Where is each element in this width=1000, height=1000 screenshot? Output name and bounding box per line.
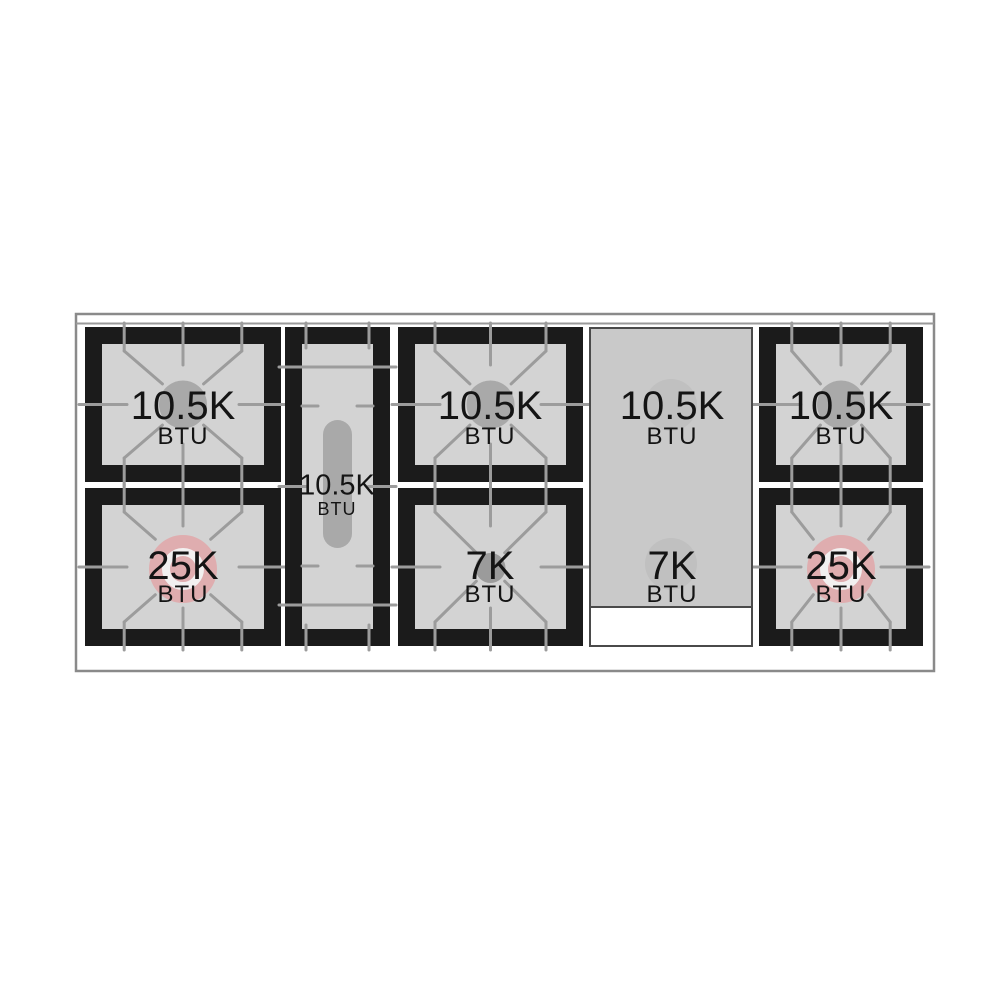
burner-unit-label: BTU — [816, 583, 867, 607]
griddle-drip-tray — [590, 607, 752, 646]
burner-power-label: 10.5K — [299, 472, 375, 501]
burner-unit-label: BTU — [158, 583, 209, 607]
burner-unit-label: BTU — [158, 425, 209, 449]
burner-unit-label: BTU — [318, 500, 357, 518]
burner-power-label: 10.5K — [438, 386, 543, 426]
range-cooktop-diagram: 10.5K BTU 25K BTU 10.5K BTU 10.5K BTU 7K… — [0, 0, 1000, 1000]
burner-power-label: 10.5K — [131, 386, 236, 426]
cooktop-graphics — [0, 0, 1000, 1000]
burner-power-label: 25K — [805, 546, 876, 586]
burner-unit-label: BTU — [647, 583, 698, 607]
burner-power-label: 7K — [466, 546, 515, 586]
burner-power-label: 25K — [147, 546, 218, 586]
burner-unit-label: BTU — [647, 425, 698, 449]
burner-unit-label: BTU — [465, 583, 516, 607]
burner-power-label: 10.5K — [620, 386, 725, 426]
burner-power-label: 10.5K — [789, 386, 894, 426]
burner-power-label: 7K — [648, 546, 697, 586]
burner-unit-label: BTU — [816, 425, 867, 449]
burner-unit-label: BTU — [465, 425, 516, 449]
